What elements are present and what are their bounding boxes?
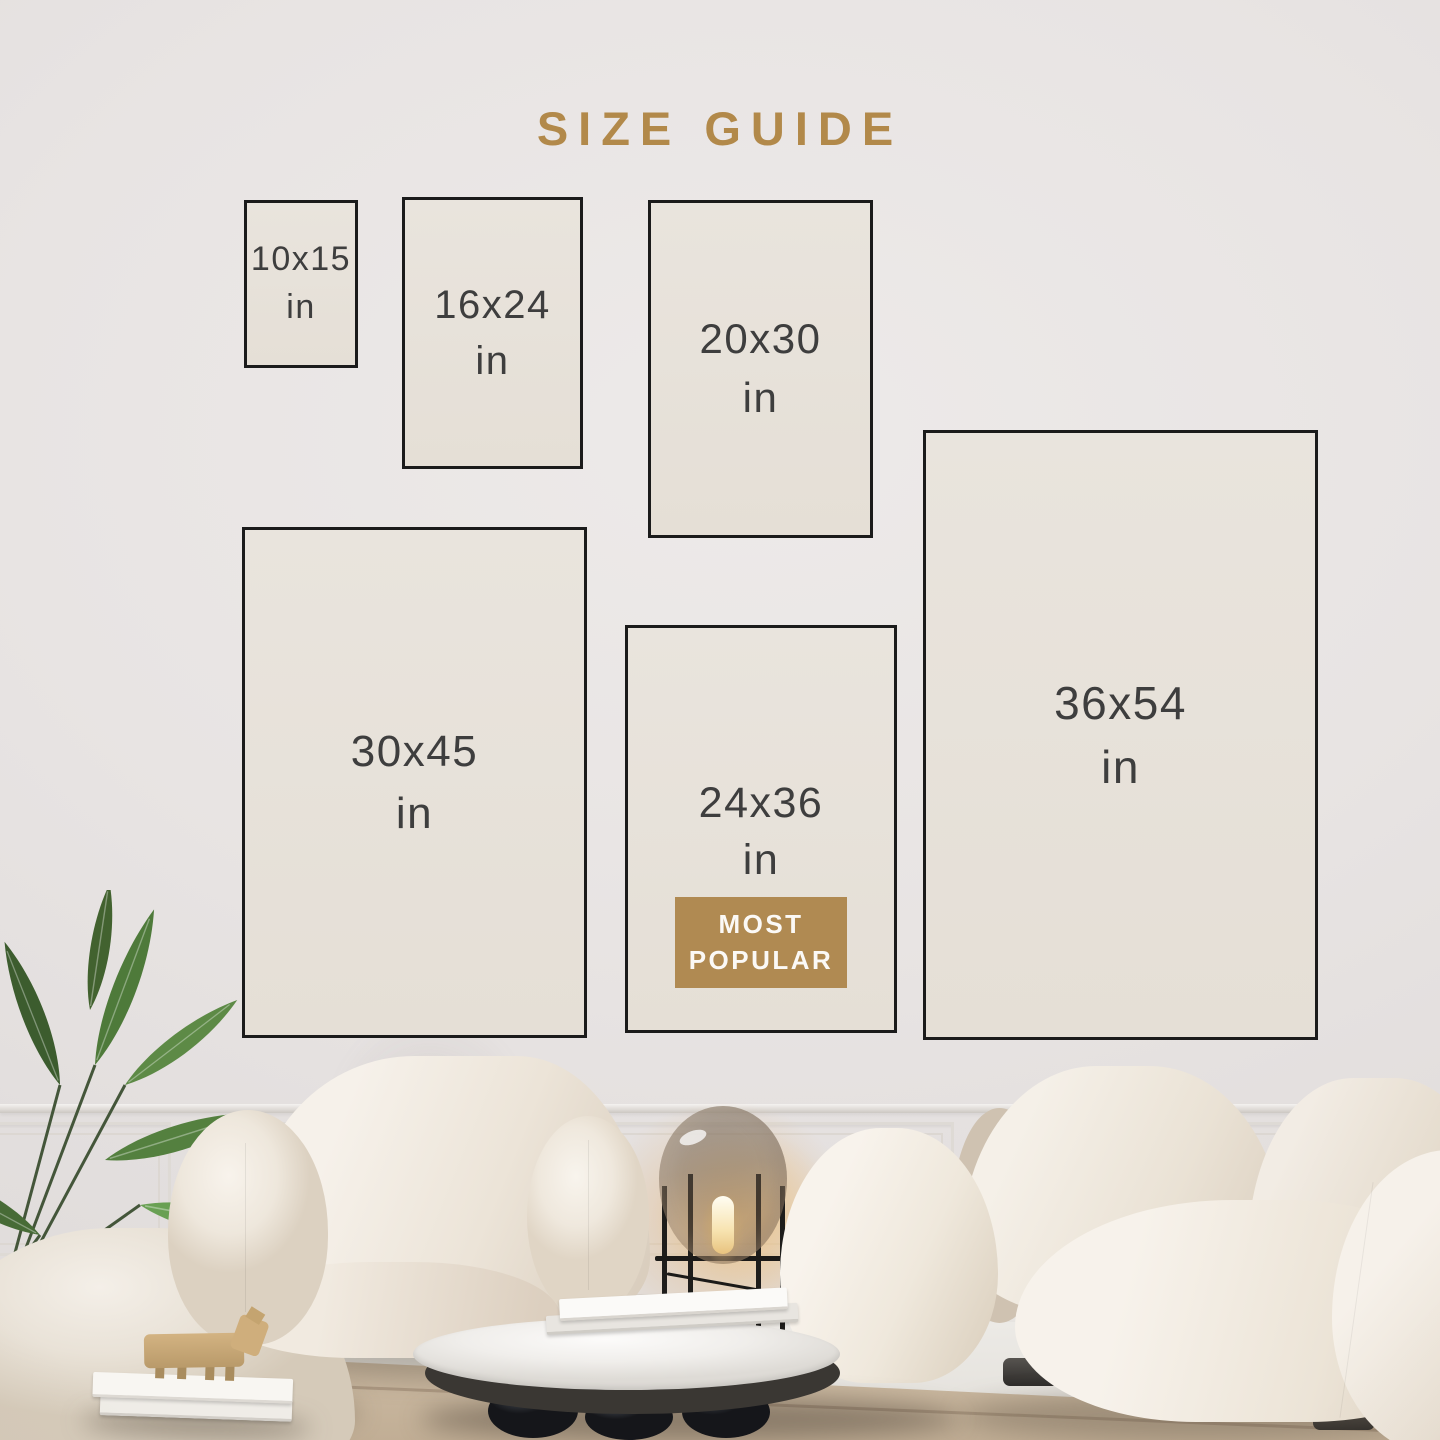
size-unit: in <box>396 783 433 845</box>
armchair-right-arm-cushion <box>527 1116 649 1318</box>
most-popular-badge: MOST POPULAR <box>675 897 847 989</box>
wood-figurine-body <box>144 1333 245 1369</box>
size-label: 20x30 <box>700 310 822 369</box>
size-unit: in <box>743 369 779 428</box>
size-label: 30x45 <box>351 721 478 783</box>
size-unit: in <box>475 333 509 389</box>
size-guide-scene: SIZE GUIDE 10x15 in 16x24 in 20x30 in 30… <box>0 0 1440 1440</box>
size-label: 24x36 <box>699 775 824 832</box>
badge-line-2: POPULAR <box>675 942 847 979</box>
size-unit: in <box>743 832 779 889</box>
badge-line-1: MOST <box>675 906 847 943</box>
size-option-36x54: 36x54 in <box>923 430 1318 1040</box>
size-option-16x24: 16x24 in <box>402 197 583 469</box>
size-option-24x36: 24x36 in MOST POPULAR <box>625 625 897 1033</box>
lamp-bulb <box>712 1196 734 1254</box>
size-unit: in <box>286 284 315 332</box>
size-label: 10x15 <box>251 236 351 284</box>
size-label: 16x24 <box>434 277 550 333</box>
size-option-10x15: 10x15 in <box>244 200 358 368</box>
size-label-stack: 24x36 in MOST POPULAR <box>675 775 847 988</box>
size-option-20x30: 20x30 in <box>648 200 873 538</box>
size-label: 36x54 <box>1054 671 1187 735</box>
size-guide-title: SIZE GUIDE <box>0 101 1440 156</box>
size-unit: in <box>1101 735 1140 799</box>
